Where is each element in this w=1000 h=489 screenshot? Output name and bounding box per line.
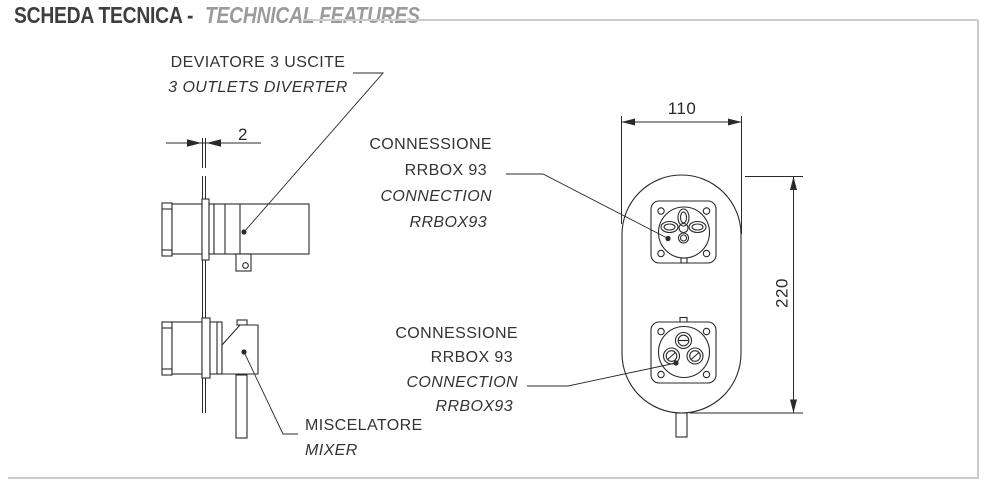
leader-dot-connection-top — [665, 236, 670, 241]
label-connection-top-2: RRBOX 93 — [405, 162, 487, 179]
dim220-arrow-bottom — [790, 400, 797, 414]
label-connection-bottom-2: RRBOX 93 — [431, 349, 513, 366]
technical-drawing: 2 110 220 DEVIATORE 3 USCITE 3 OUTLETS D… — [0, 0, 1000, 489]
leader-connection-top — [506, 174, 668, 239]
dim2-arrow-left — [207, 139, 222, 147]
mixer-flange — [202, 318, 210, 378]
label-connection-top-1: CONNESSIONE — [369, 136, 492, 153]
mixer-body-bump — [237, 320, 247, 325]
label-mixer-en: MIXER — [305, 442, 358, 459]
mixer-end-cap — [162, 322, 172, 375]
dim110-arrow-right — [728, 119, 742, 126]
connection-bottom-front — [651, 318, 716, 384]
front-bottom-stub — [676, 413, 687, 437]
label-diverter-it: DEVIATORE 3 USCITE — [171, 54, 346, 71]
dim-front-height-value: 220 — [772, 278, 791, 308]
label-mixer-it: MISCELATORE — [305, 417, 423, 434]
leader-dot-connection-bottom — [673, 360, 678, 365]
diverter-end-cap — [162, 203, 172, 256]
dim110-arrow-left — [622, 119, 636, 126]
dim220-arrow-top — [790, 177, 797, 191]
mixer-body — [222, 325, 258, 374]
dim-wall-thickness-value: 2 — [238, 125, 248, 144]
label-connection-top-3: CONNECTION — [380, 188, 492, 205]
leader-dot-diverter — [241, 229, 246, 234]
leader-diverter — [244, 73, 383, 232]
diverter-ring — [209, 204, 214, 254]
label-diverter-en: 3 OUTLETS DIVERTER — [168, 79, 347, 96]
diverter-outlet-detail — [243, 263, 249, 269]
connection-bottom-plate — [651, 322, 716, 383]
leader-dot-mixer — [241, 349, 246, 354]
label-connection-top-4: RRBOX93 — [410, 214, 488, 231]
dim2-arrow-right — [187, 139, 202, 147]
label-connection-bottom-3: CONNECTION — [406, 374, 518, 391]
label-connection-bottom-1: CONNESSIONE — [395, 325, 518, 342]
diverter-inwall-body — [172, 204, 202, 254]
technical-sheet-page: SCHEDA TECNICA - TECHNICAL FEATURES — [0, 0, 1000, 489]
diverter-flange — [202, 199, 209, 260]
mixer-side-view — [162, 318, 258, 438]
diverter-outlet — [236, 254, 251, 271]
connection-top-front — [651, 201, 716, 263]
mixer-ring — [210, 322, 222, 374]
front-view — [622, 116, 804, 437]
dim-front-width-value: 110 — [668, 99, 697, 118]
mixer-inwall-body — [172, 322, 202, 374]
annotation-labels: DEVIATORE 3 USCITE 3 OUTLETS DIVERTER CO… — [168, 54, 518, 459]
label-connection-bottom-4: RRBOX93 — [436, 398, 514, 415]
diverter-side-view — [162, 199, 309, 271]
mixer-handle — [236, 375, 247, 438]
